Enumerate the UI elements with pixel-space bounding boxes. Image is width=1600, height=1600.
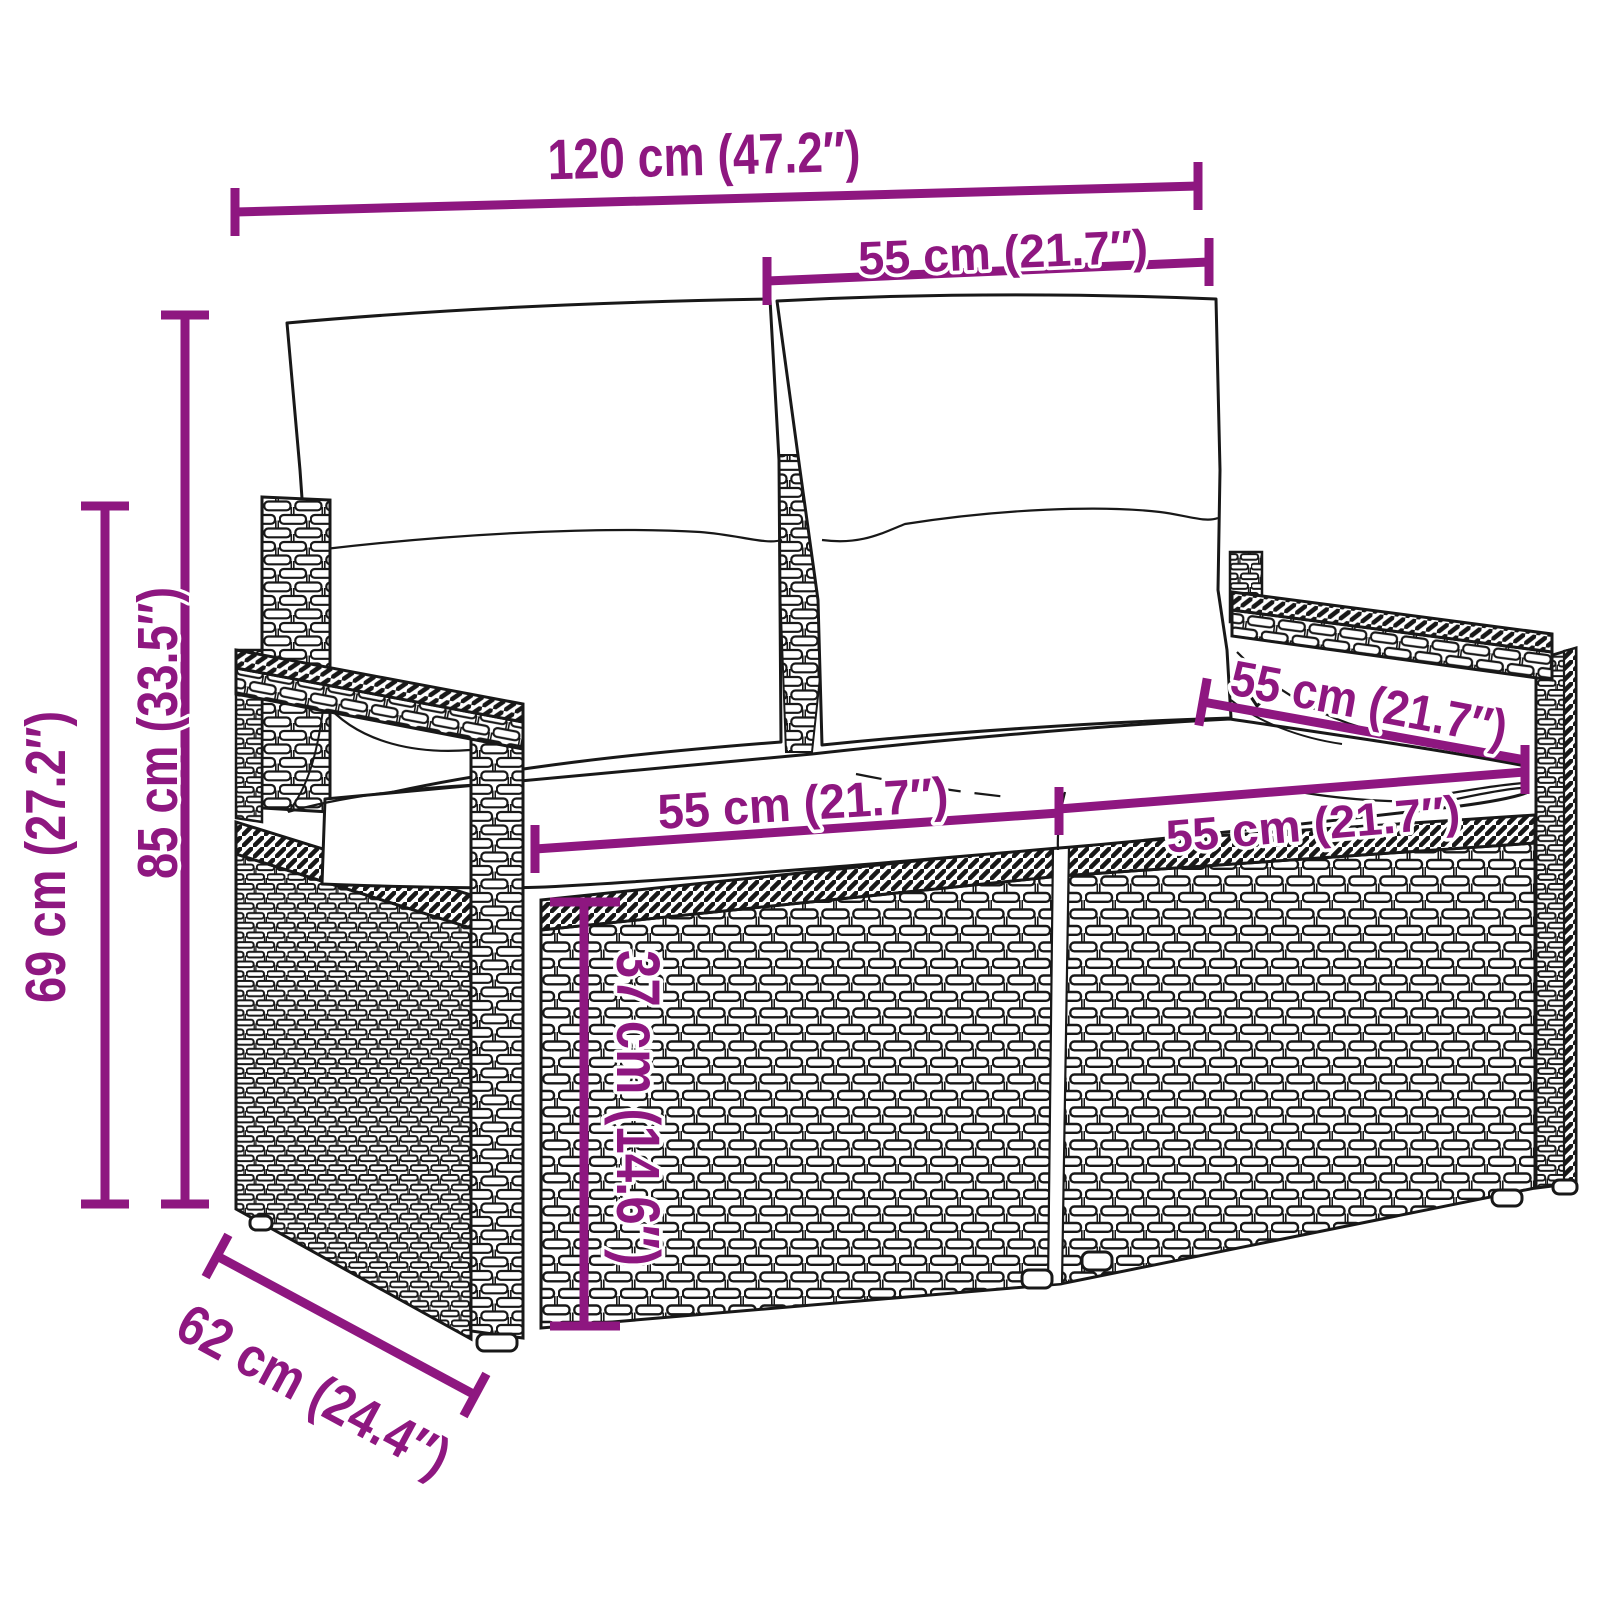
svg-text:37 cm (14.6″): 37 cm (14.6″)	[604, 950, 672, 1266]
svg-text:120 cm (47.2″): 120 cm (47.2″)	[547, 120, 862, 193]
svg-text:69 cm (27.2″): 69 cm (27.2″)	[14, 711, 78, 1003]
svg-text:85 cm (33.5″): 85 cm (33.5″)	[126, 587, 190, 879]
